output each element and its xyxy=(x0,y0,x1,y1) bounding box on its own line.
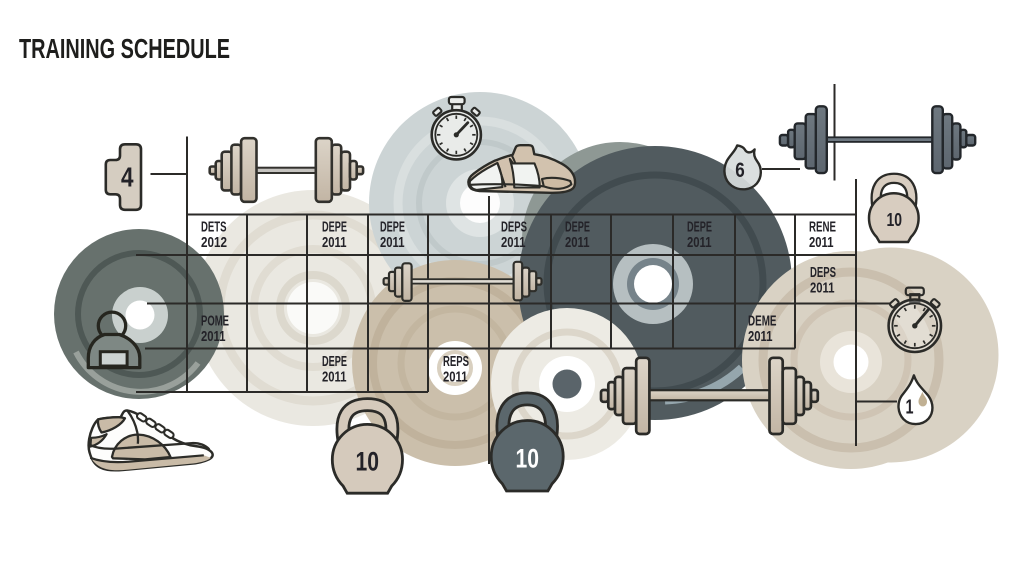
svg-text:2011: 2011 xyxy=(501,235,526,251)
svg-text:TRAINING SCHEDULE: TRAINING SCHEDULE xyxy=(19,33,230,64)
svg-text:4: 4 xyxy=(121,162,134,193)
svg-text:6: 6 xyxy=(735,158,745,182)
svg-text:2011: 2011 xyxy=(322,235,347,251)
svg-text:10: 10 xyxy=(356,447,380,477)
svg-text:10: 10 xyxy=(516,444,540,474)
svg-text:DEPE: DEPE xyxy=(322,354,347,370)
svg-text:DEME: DEME xyxy=(748,314,777,330)
svg-text:2011: 2011 xyxy=(810,281,835,297)
svg-text:10: 10 xyxy=(887,209,903,230)
svg-text:DEPE: DEPE xyxy=(565,220,590,236)
svg-text:DEPE: DEPE xyxy=(322,220,347,236)
svg-text:DETS: DETS xyxy=(201,220,227,236)
svg-text:DEPS: DEPS xyxy=(501,220,527,236)
svg-text:2011: 2011 xyxy=(443,370,468,386)
svg-text:DEPE: DEPE xyxy=(687,220,712,236)
svg-text:2012: 2012 xyxy=(201,235,227,251)
svg-text:RENE: RENE xyxy=(809,220,836,236)
svg-text:2011: 2011 xyxy=(687,235,712,251)
svg-text:2011: 2011 xyxy=(322,370,347,386)
svg-text:2011: 2011 xyxy=(565,235,590,251)
svg-text:REPS: REPS xyxy=(443,354,469,370)
svg-text:POME: POME xyxy=(201,314,229,330)
svg-text:DEPS: DEPS xyxy=(810,265,836,281)
svg-text:DEPE: DEPE xyxy=(380,220,405,236)
svg-text:2011: 2011 xyxy=(748,329,773,345)
svg-text:1: 1 xyxy=(906,397,914,419)
svg-text:2011: 2011 xyxy=(380,235,405,251)
svg-text:2011: 2011 xyxy=(809,235,834,251)
svg-text:2011: 2011 xyxy=(201,329,226,345)
